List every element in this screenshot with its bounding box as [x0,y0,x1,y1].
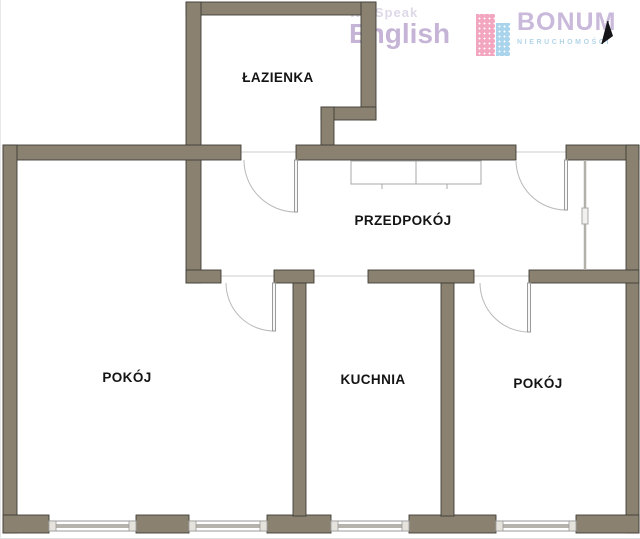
wall-outer-left [3,145,17,533]
wall-bathroom-top [186,2,376,15]
wall-kitchen-left [293,283,306,516]
wall-top-middle [296,145,516,160]
wall-outer-right [626,145,639,533]
window-symbol [331,521,409,531]
hallway-wardrobe [351,161,481,189]
wall-bottom-pier [267,515,331,533]
walls-layer [3,2,639,533]
room-label-kuchnia: KUCHNIA [340,372,405,387]
floorplan-page: We Speak English BONUM NIERUCHOMOŚCI [0,0,640,539]
room-label-przedpokoj: PRZEDPOKÓJ [354,213,451,228]
wall-divider-c [529,270,639,283]
wall-top-left [3,145,241,160]
wall-bathroom-right [361,2,376,120]
door-entrance [516,160,568,210]
room-label-pokoj-right: POKÓJ [513,376,562,391]
wall-bottom-pier [409,515,496,533]
wall-bottom-pier [576,515,639,533]
doors-layer [226,160,568,332]
wall-divider-a [274,270,314,283]
door-room-right [480,283,531,332]
wall-kitchen-right [441,283,454,516]
wall-bottom-pier [136,515,189,533]
room-label-lazienka: ŁAZIENKA [242,70,313,85]
window-symbol [496,521,576,531]
room-label-pokoj-left: POKÓJ [102,370,151,385]
door-bathroom [244,160,298,212]
window-symbol [49,521,136,531]
window-symbol [189,521,267,531]
wall-divider-stub [186,270,221,283]
wall-bottom-pier [3,515,49,533]
wall-divider-b [368,270,474,283]
entry-closet [582,160,588,270]
wall-bathroom-left [186,2,201,283]
door-room-left [226,283,276,331]
floorplan-drawing: ŁAZIENKA PRZEDPOKÓJ POKÓJ KUCHNIA POKÓJ [1,0,640,538]
